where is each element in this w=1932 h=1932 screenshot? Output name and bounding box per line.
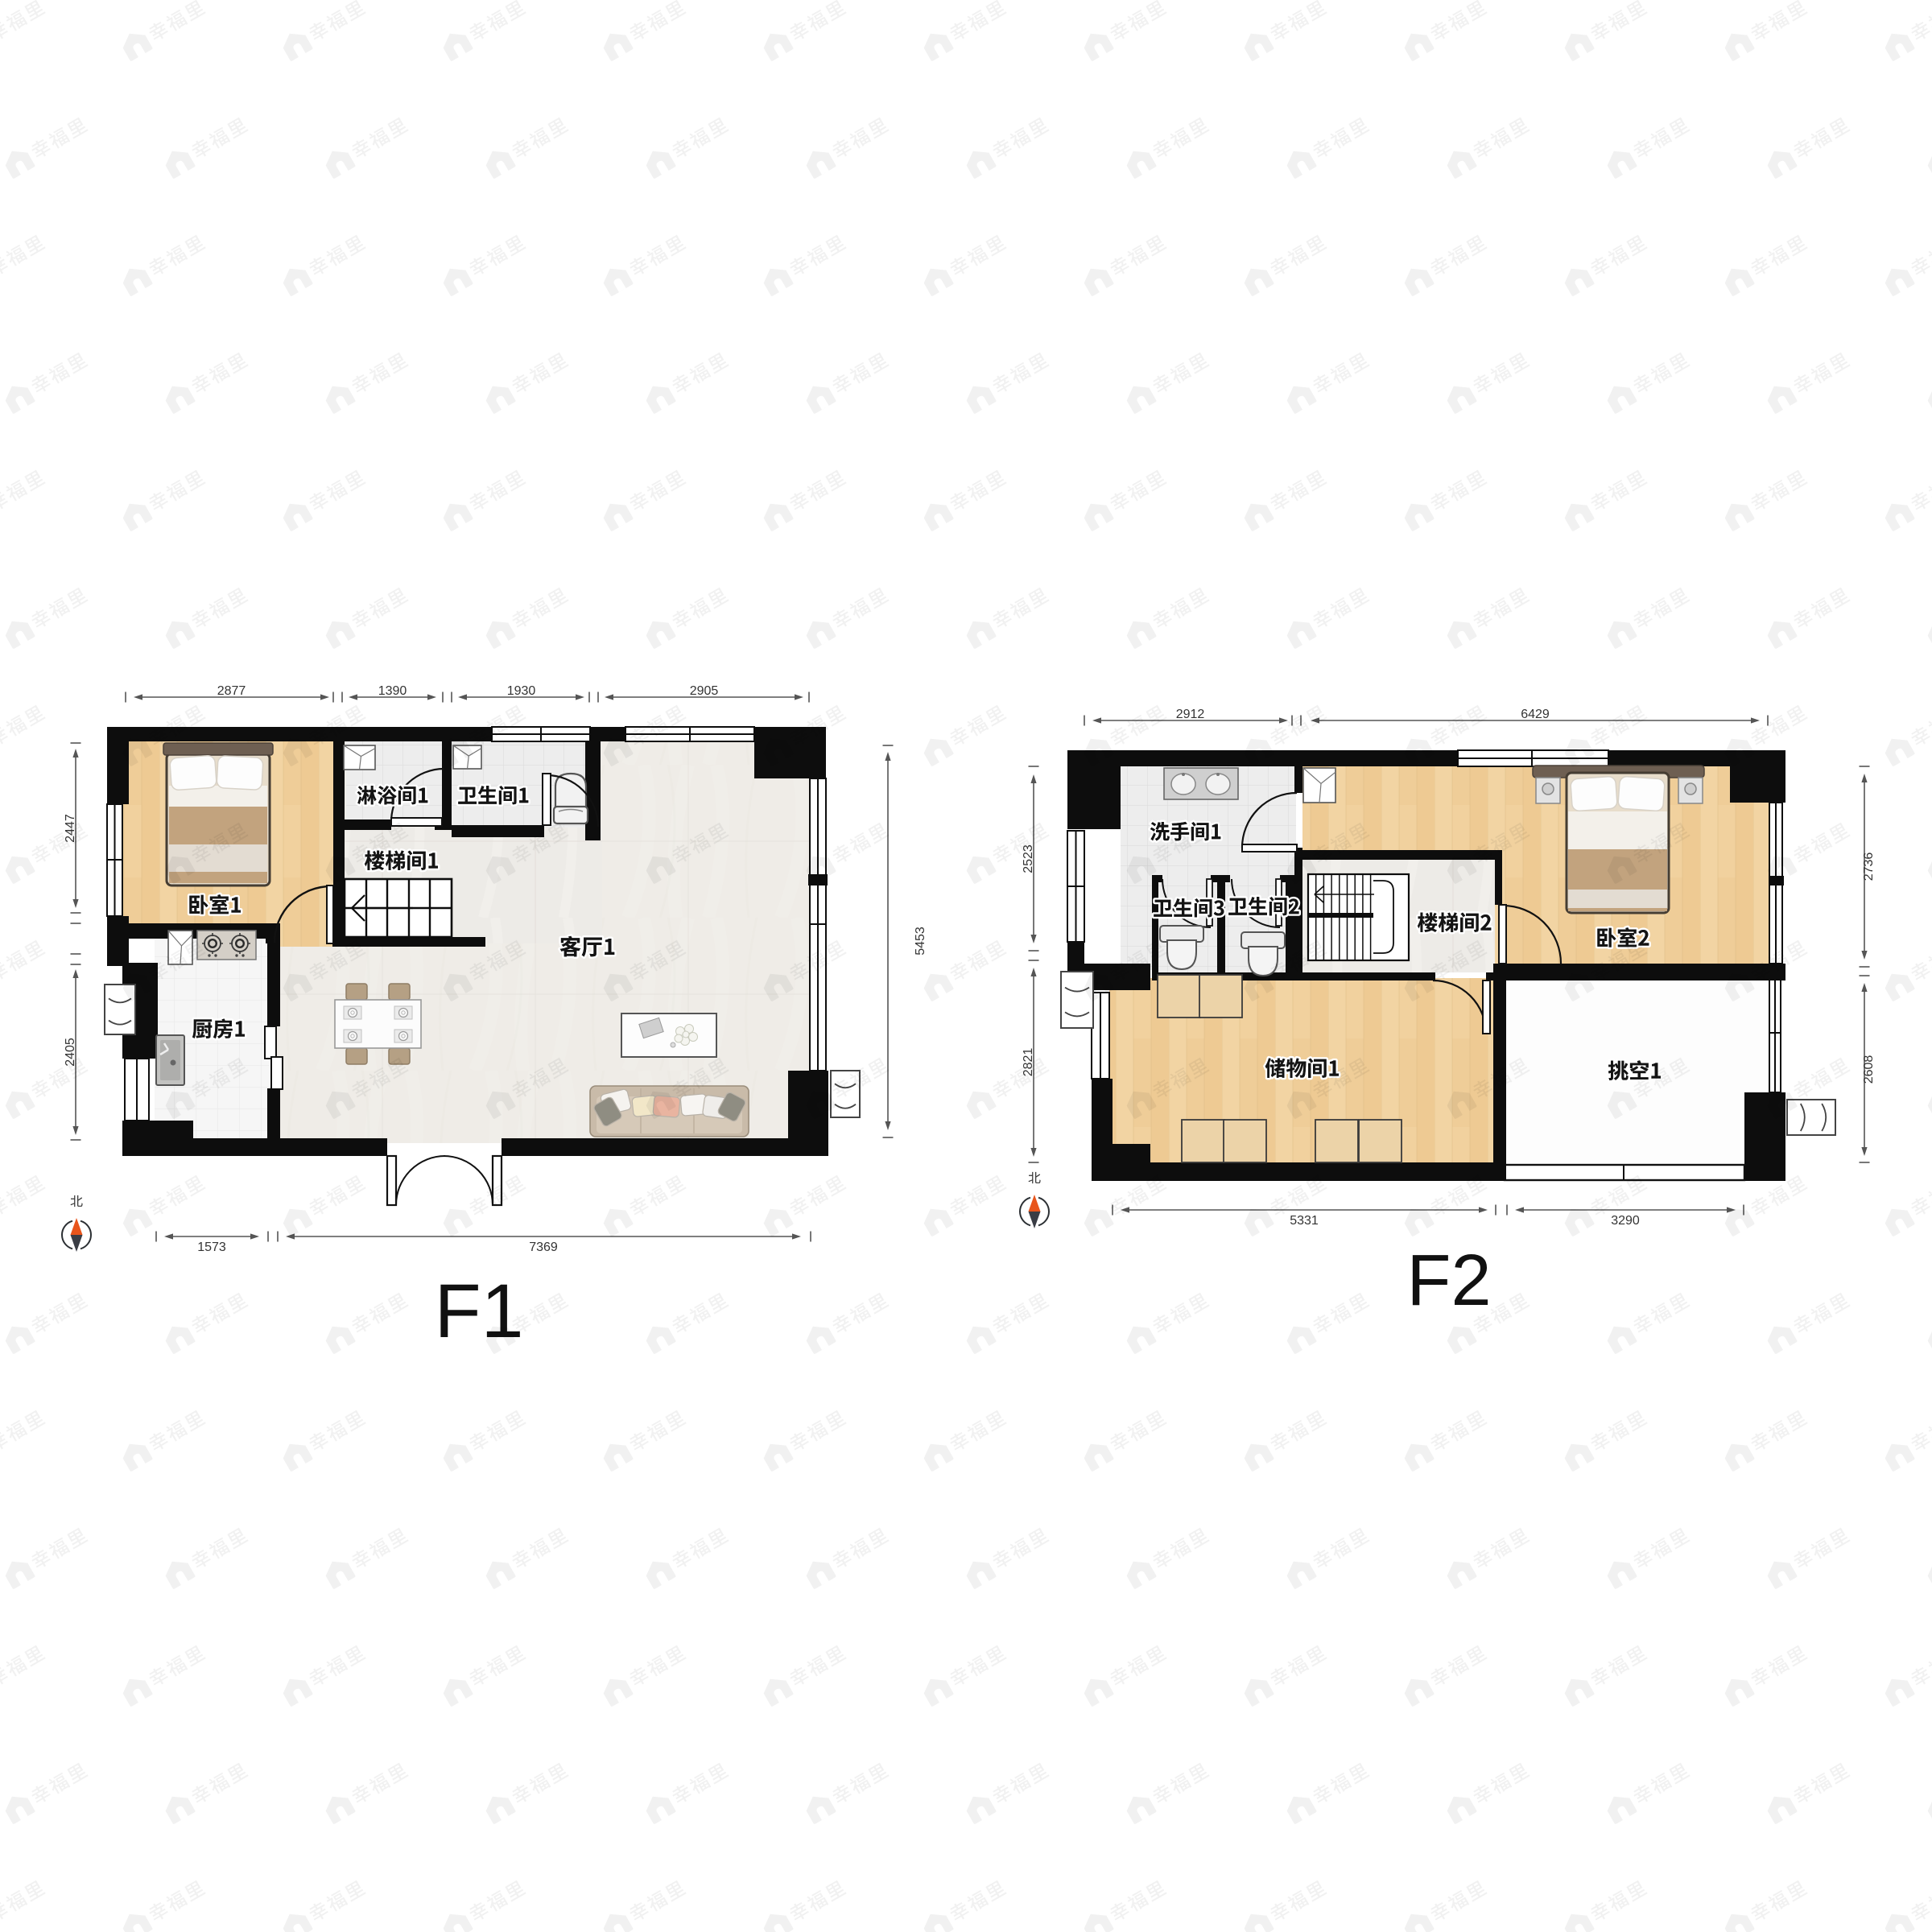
svg-text:2405: 2405	[64, 1038, 77, 1067]
svg-text:5331: 5331	[1290, 1214, 1319, 1228]
svg-text:2736: 2736	[1862, 852, 1876, 881]
svg-text:F2: F2	[1406, 1241, 1491, 1321]
svg-text:5453: 5453	[914, 927, 927, 956]
svg-text:2905: 2905	[690, 684, 719, 698]
svg-text:7369: 7369	[529, 1241, 558, 1254]
svg-text:1930: 1930	[507, 684, 536, 698]
svg-text:1573: 1573	[197, 1241, 226, 1254]
svg-text:6429: 6429	[1521, 708, 1550, 721]
svg-text:1390: 1390	[378, 684, 407, 698]
svg-text:2608: 2608	[1862, 1055, 1876, 1084]
svg-text:3290: 3290	[1611, 1214, 1640, 1228]
svg-text:2912: 2912	[1176, 708, 1205, 721]
svg-text:2877: 2877	[217, 684, 246, 698]
